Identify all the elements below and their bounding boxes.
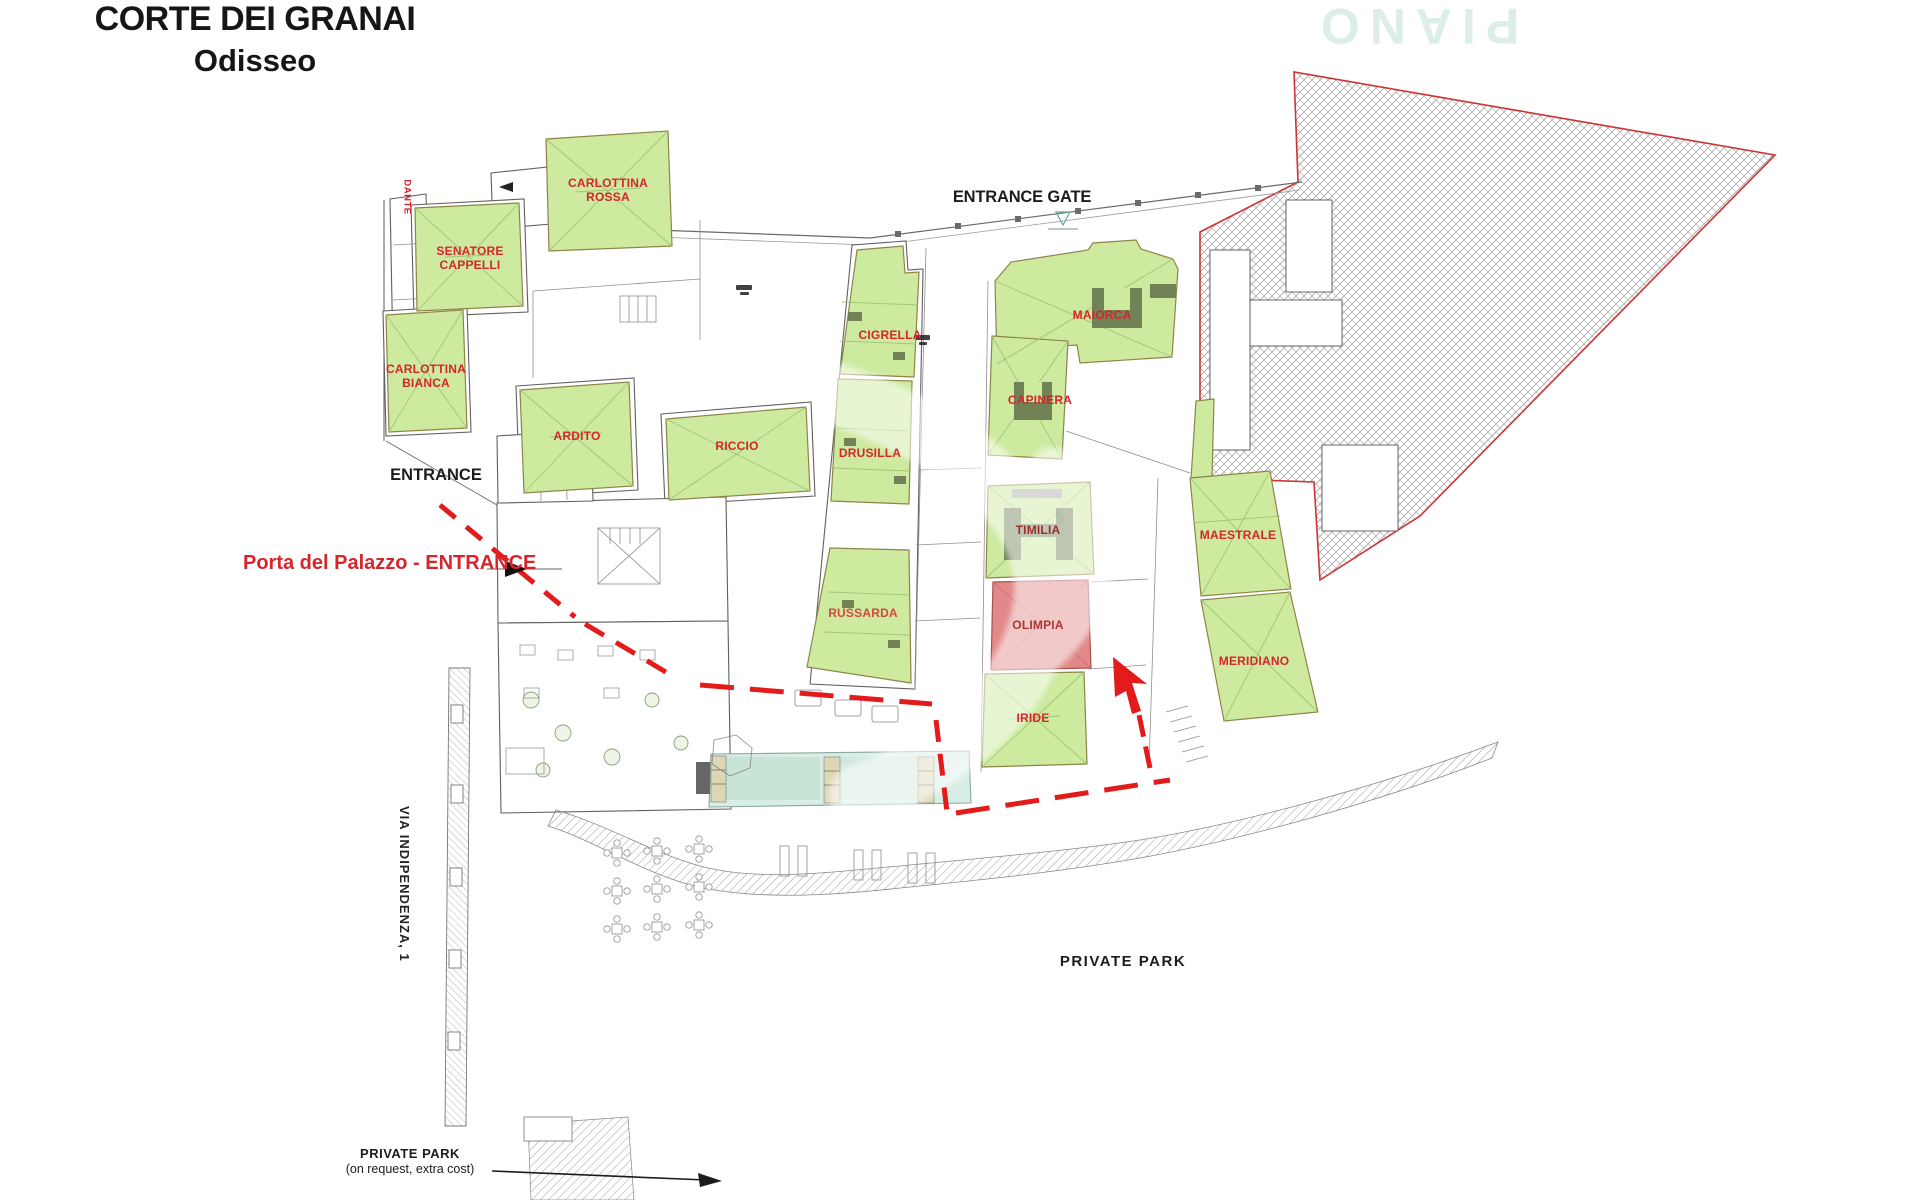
palazzo-entrance-label: Porta del Palazzo - ENTRANCE [243, 552, 536, 575]
unit-label-iride: IRIDE [1016, 712, 1049, 726]
hatched-neighbour-area [1200, 72, 1775, 580]
unit-label-carlottina-rossa: CARLOTTINA ROSSA [563, 177, 653, 205]
unit-label-carlottina-bianca: CARLOTTINA BIANCA [381, 363, 471, 391]
site-plan-page: CORTE DEI GRANAI Odisseo PIANO TERRA ENT… [0, 0, 1920, 1200]
pool-equipment-block [696, 762, 710, 794]
building-name: Odisseo [60, 43, 450, 79]
garden-tables [604, 836, 712, 942]
unit-label-ardito: ARDITO [554, 430, 601, 444]
park-note-subtitle: (on request, extra cost) [300, 1162, 520, 1176]
bottom-hatch-patch [524, 1117, 634, 1200]
unit-label-maestrale: MAESTRALE [1200, 529, 1276, 543]
floor-plan-drawing [0, 0, 1920, 1200]
unit-label-drusilla: DRUSILLA [839, 447, 901, 461]
unit-label-capinera: CAPINERA [1008, 394, 1072, 408]
unit-label-maiorca: MAIORCA [1073, 309, 1132, 323]
street-strip [445, 668, 470, 1126]
unit-label-riccio: RICCIO [715, 440, 758, 454]
unit-label-cigrella: CIGRELLA [859, 329, 922, 343]
entrance-gate-label: ENTRANCE GATE [953, 188, 1091, 206]
unit-label-dante: DANTE [401, 179, 412, 214]
unit-label-meridiano: MERIDIANO [1219, 655, 1289, 669]
unit-label-olimpia: OLIMPIA [1012, 619, 1063, 633]
street-name-label: VIA INDIPENDENZA, 1 [397, 806, 412, 996]
page-title: CORTE DEI GRANAI Odisseo [60, 0, 450, 79]
private-park-note: PRIVATE PARK (on request, extra cost) [300, 1146, 520, 1176]
park-note-title: PRIVATE PARK [300, 1146, 520, 1161]
unit-label-russarda: RUSSARDA [828, 607, 898, 621]
unit-maestrale-strip [1191, 399, 1214, 479]
unit-label-senatore-cappelli: SENATORE CAPPELLI [427, 245, 513, 273]
entrance-label: ENTRANCE [390, 466, 482, 484]
floor-watermark-text: PIANO TERRA [1190, 0, 1640, 58]
unit-label-timilia: TIMILIA [1016, 524, 1061, 538]
private-park-label: PRIVATE PARK [1060, 954, 1186, 971]
project-title: CORTE DEI GRANAI [60, 0, 450, 39]
